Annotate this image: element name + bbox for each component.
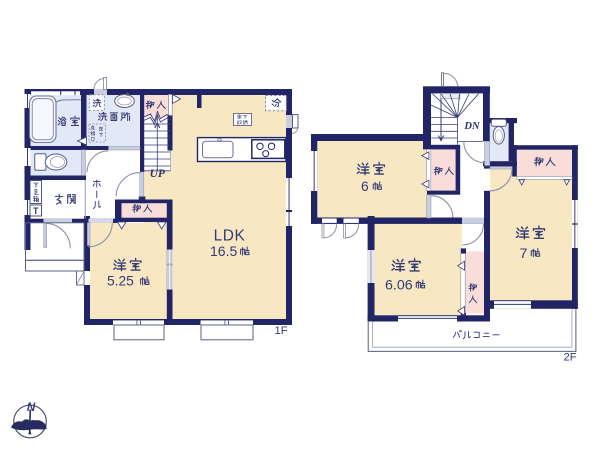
svg-text:2F: 2F (563, 351, 576, 363)
svg-text:7: 7 (520, 246, 528, 262)
svg-text:UP: UP (150, 168, 166, 180)
svg-text:DN: DN (463, 121, 480, 132)
svg-text:6.06: 6.06 (385, 277, 413, 293)
svg-text:T: T (33, 206, 39, 216)
svg-text:1F: 1F (274, 325, 287, 337)
svg-text:16.5: 16.5 (210, 243, 237, 259)
svg-text:5.25: 5.25 (107, 274, 134, 289)
svg-text:6: 6 (361, 179, 369, 194)
svg-text:N: N (27, 402, 36, 414)
svg-text:LDK: LDK (214, 228, 246, 245)
